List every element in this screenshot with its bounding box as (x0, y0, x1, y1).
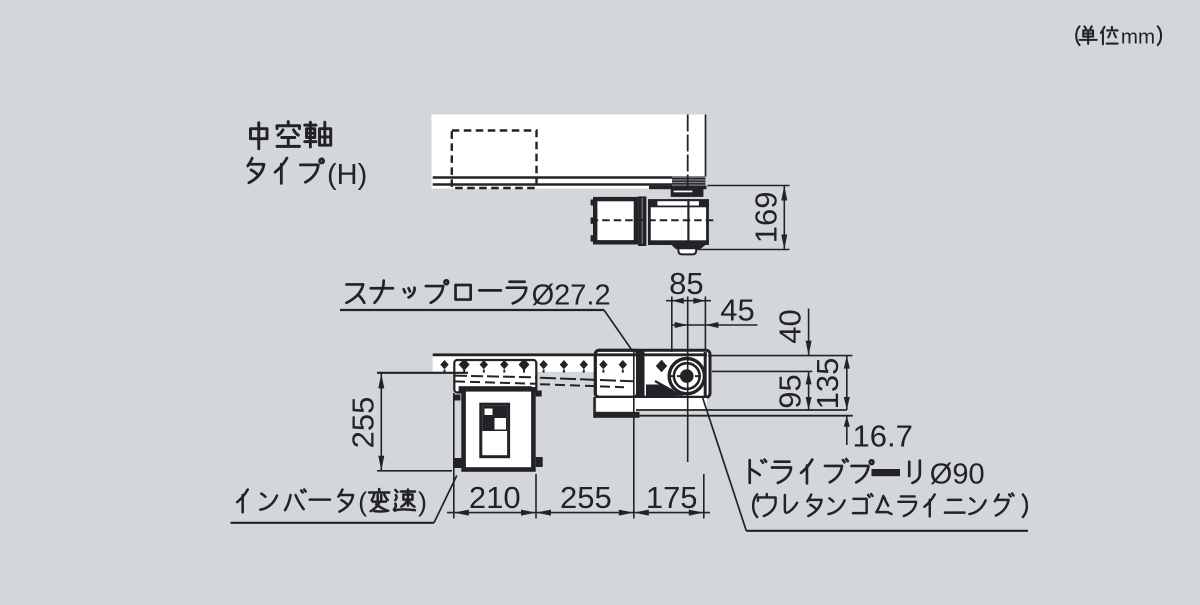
svg-text:45: 45 (720, 293, 754, 328)
svg-text:255: 255 (346, 397, 381, 449)
svg-text:175: 175 (646, 480, 698, 515)
svg-text:95: 95 (773, 374, 808, 408)
svg-text:(H): (H) (327, 159, 367, 191)
svg-text:85: 85 (669, 266, 703, 301)
svg-text:mm: mm (1121, 25, 1155, 48)
svg-text:): ) (418, 487, 427, 517)
svg-text:Ø90: Ø90 (930, 459, 985, 491)
svg-text:Ø27.2: Ø27.2 (532, 280, 611, 312)
svg-text:(: ( (358, 487, 367, 517)
svg-text:210: 210 (469, 480, 521, 515)
svg-text:135: 135 (810, 358, 845, 410)
svg-text:16.7: 16.7 (853, 418, 913, 453)
svg-text:255: 255 (560, 480, 612, 515)
svg-text:40: 40 (773, 309, 808, 343)
svg-text:169: 169 (749, 192, 784, 244)
